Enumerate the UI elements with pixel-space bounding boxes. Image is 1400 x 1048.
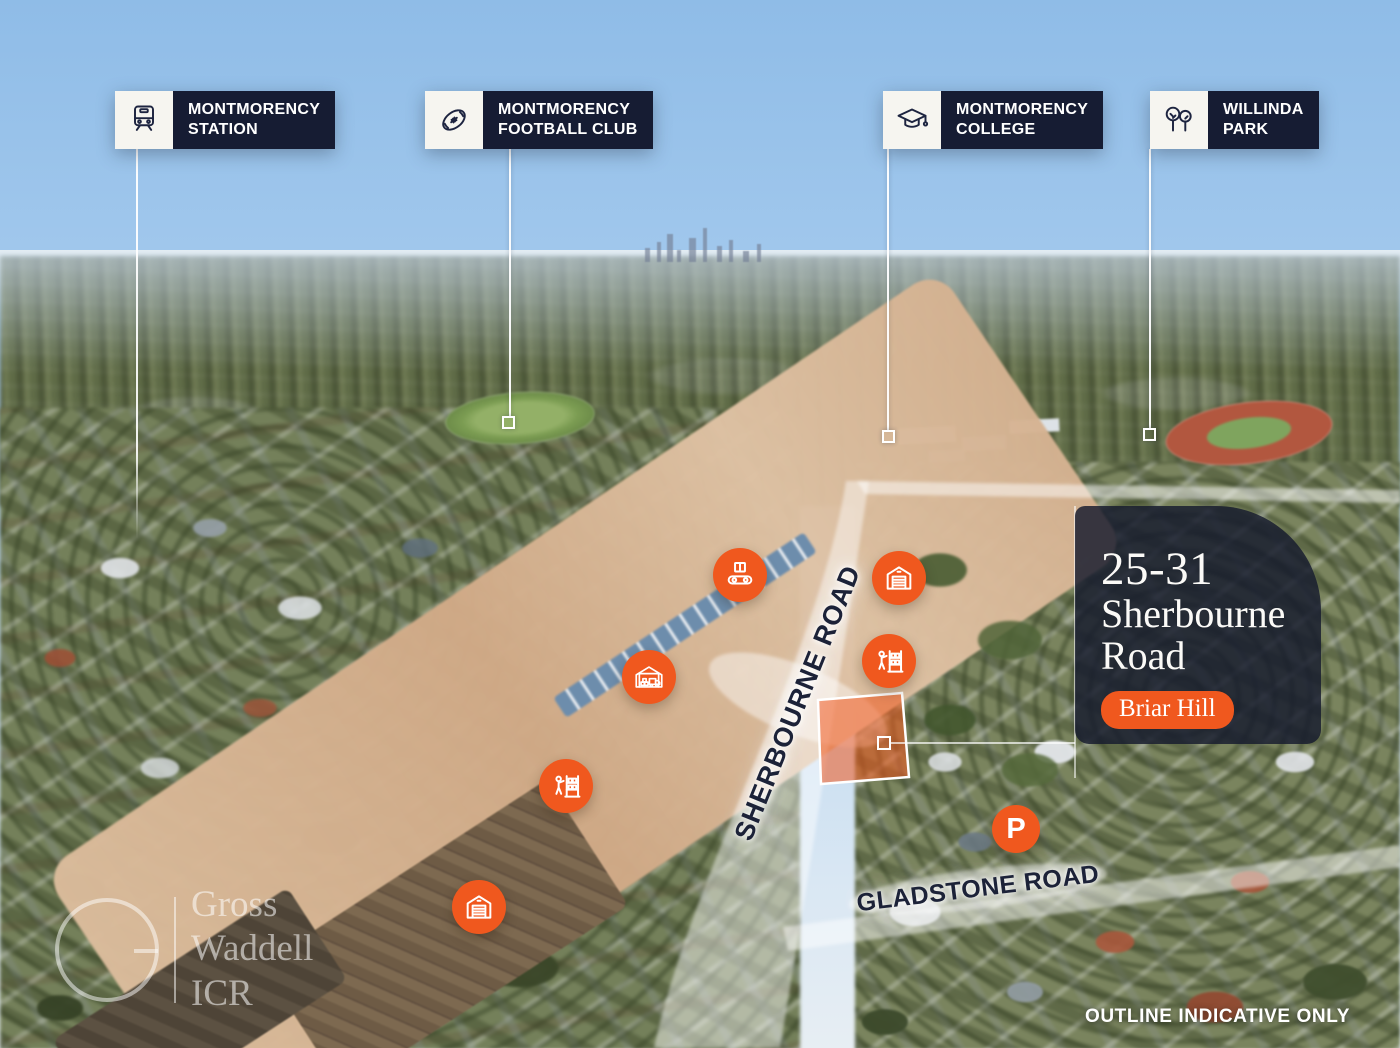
landmark-label-text: MONTMORENCY STATION (173, 91, 335, 149)
football-icon (425, 91, 483, 149)
agency-name-line3: ICR (191, 972, 313, 1016)
conveyor-glyph (723, 558, 757, 592)
train-icon (115, 91, 173, 149)
callout-endpoint-football-club (502, 416, 515, 429)
callout-line-college (887, 149, 889, 431)
agency-logo-icon (55, 898, 159, 1002)
property-address-road: Road (1101, 635, 1321, 677)
racking-icon (862, 634, 916, 688)
parking-letter: P (1006, 815, 1025, 844)
callout-endpoint-willinda-park (1143, 428, 1156, 441)
landmark-line1: MONTMORENCY (188, 100, 320, 120)
landmark-line2: PARK (1223, 120, 1304, 140)
landmark-label-station: MONTMORENCY STATION (115, 91, 335, 149)
landmark-line1: WILLINDA (1223, 100, 1304, 120)
racking-icon (539, 759, 593, 813)
property-title-panel: 25-31 Sherbourne Road Briar Hill (1075, 506, 1321, 744)
agency-name-line2: Waddell (191, 927, 313, 971)
landmark-label-text: MONTMORENCY FOOTBALL CLUB (483, 91, 653, 149)
racking-glyph (872, 644, 906, 678)
landmark-label-football-club: MONTMORENCY FOOTBALL CLUB (425, 91, 653, 149)
suburb-badge: Briar Hill (1101, 691, 1234, 729)
top-road-highlight (857, 481, 1400, 503)
landmark-label-willinda-park: WILLINDA PARK (1150, 91, 1319, 149)
agency-watermark: Gross Waddell ICR (55, 883, 313, 1016)
warehouse-truck-glyph (632, 660, 666, 694)
property-address-number: 25-31 (1101, 546, 1321, 593)
landmark-line1: MONTMORENCY (498, 100, 638, 120)
callout-line-willinda-park (1149, 149, 1151, 429)
racking-glyph (549, 769, 583, 803)
roller-door-icon (872, 551, 926, 605)
landmark-line2: COLLEGE (956, 120, 1088, 140)
graduation-cap-icon (883, 91, 941, 149)
landmark-label-text: MONTMORENCY COLLEGE (941, 91, 1103, 149)
property-address-street: Sherbourne (1101, 593, 1321, 635)
conveyor-icon (713, 548, 767, 602)
callout-line-football-club (509, 149, 511, 417)
roller-door-glyph (462, 890, 496, 924)
parking-icon: P (992, 805, 1040, 853)
callout-endpoint-college (882, 430, 895, 443)
watermark-divider (174, 897, 176, 1003)
agency-name: Gross Waddell ICR (191, 883, 313, 1016)
trees-icon (1150, 91, 1208, 149)
roller-door-icon (452, 880, 506, 934)
landmark-line2: FOOTBALL CLUB (498, 120, 638, 140)
landmark-label-text: WILLINDA PARK (1208, 91, 1319, 149)
agency-name-line1: Gross (191, 883, 313, 927)
outline-disclaimer: OUTLINE INDICATIVE ONLY (1085, 1006, 1350, 1028)
roller-door-glyph (882, 561, 916, 595)
warehouse-truck-icon (622, 650, 676, 704)
landmark-line1: MONTMORENCY (956, 100, 1088, 120)
subject-site-outline (818, 693, 909, 784)
landmark-label-college: MONTMORENCY COLLEGE (883, 91, 1103, 149)
callout-line-station (136, 149, 138, 539)
aerial-site-map: SHERBOURNE ROAD GLADSTONE ROAD (0, 0, 1400, 1048)
landmark-line2: STATION (188, 120, 320, 140)
